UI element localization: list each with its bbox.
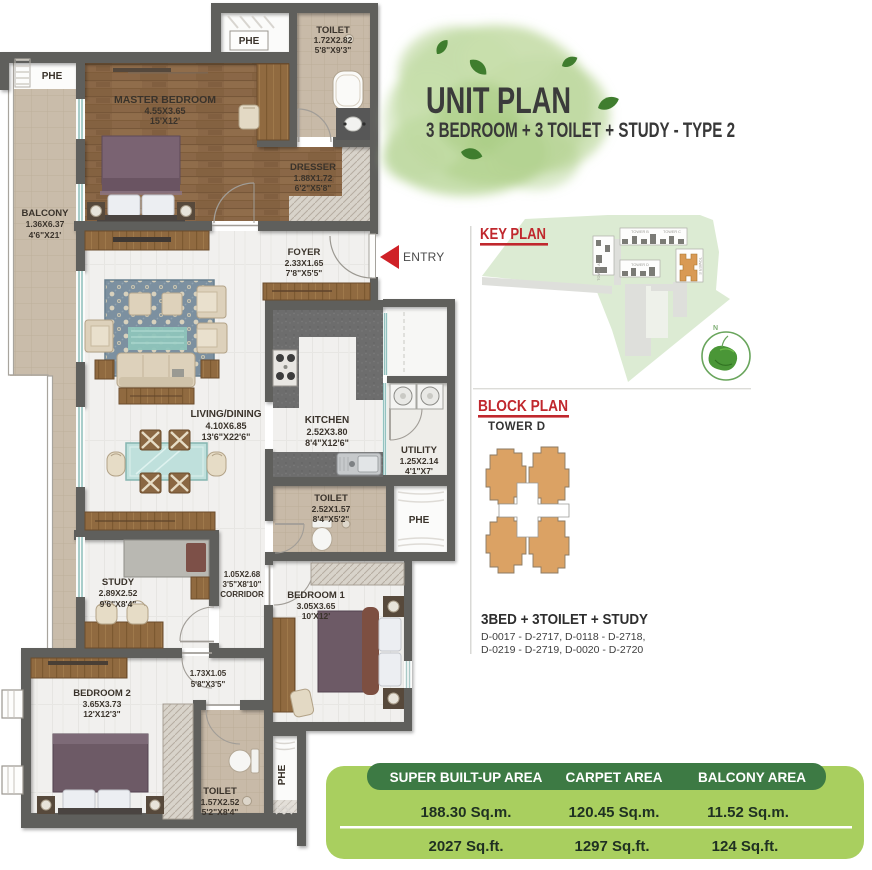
svg-text:124 Sq.ft.: 124 Sq.ft.	[712, 838, 779, 855]
svg-text:DRESSER: DRESSER	[290, 162, 336, 173]
svg-text:D-0017 - D-2717, D-0118 - D-27: D-0017 - D-2717, D-0118 - D-2718,	[481, 631, 645, 643]
svg-text:TOWER C: TOWER C	[663, 230, 681, 234]
svg-text:TOILET: TOILET	[203, 786, 237, 797]
svg-text:3BED + 3TOILET + STUDY: 3BED + 3TOILET + STUDY	[481, 611, 648, 628]
svg-text:2.33X1.65: 2.33X1.65	[285, 258, 324, 268]
svg-text:5'8"X9'3": 5'8"X9'3"	[315, 45, 352, 55]
svg-text:3 BEDROOM + 3 TOILET + STUDY -: 3 BEDROOM + 3 TOILET + STUDY - TYPE 2	[426, 119, 735, 142]
svg-text:ENTRY: ENTRY	[403, 250, 444, 264]
svg-text:1.88X1.72: 1.88X1.72	[294, 173, 333, 183]
svg-text:1.25X2.14: 1.25X2.14	[400, 456, 439, 466]
svg-text:1.73X1.05: 1.73X1.05	[190, 669, 227, 678]
svg-text:BLOCK PLAN: BLOCK PLAN	[478, 398, 568, 415]
svg-text:TOWER D: TOWER D	[631, 263, 649, 267]
svg-text:PHE: PHE	[239, 36, 260, 47]
svg-text:1297 Sq.ft.: 1297 Sq.ft.	[574, 838, 649, 855]
svg-text:FOYER: FOYER	[288, 247, 321, 258]
svg-text:UNIT PLAN: UNIT PLAN	[426, 80, 571, 121]
svg-text:4'1"X7': 4'1"X7'	[405, 466, 433, 476]
svg-text:BALCONY: BALCONY	[22, 208, 70, 219]
svg-text:4.55X3.65: 4.55X3.65	[144, 106, 185, 116]
svg-text:N: N	[713, 325, 718, 332]
svg-text:TOWER D: TOWER D	[488, 421, 546, 433]
svg-text:SUPER BUILT-UP AREA: SUPER BUILT-UP AREA	[390, 770, 543, 785]
svg-text:TOILET: TOILET	[314, 493, 348, 504]
svg-text:TOWER E: TOWER E	[698, 257, 702, 275]
svg-text:1.05X2.68: 1.05X2.68	[224, 570, 261, 579]
svg-text:BEDROOM 2: BEDROOM 2	[73, 688, 131, 699]
svg-text:KEY PLAN: KEY PLAN	[480, 226, 546, 243]
svg-text:PHE: PHE	[409, 515, 430, 526]
svg-text:188.30 Sq.m.: 188.30 Sq.m.	[421, 804, 512, 821]
svg-text:11.52 Sq.m.: 11.52 Sq.m.	[707, 804, 789, 821]
svg-text:1.57X2.52: 1.57X2.52	[201, 797, 240, 807]
svg-text:120.45 Sq.m.: 120.45 Sq.m.	[569, 804, 660, 821]
svg-text:9'6"X8'4": 9'6"X8'4"	[100, 599, 137, 609]
svg-text:BEDROOM 1: BEDROOM 1	[287, 590, 345, 601]
svg-text:CARPET AREA: CARPET AREA	[565, 770, 662, 785]
svg-text:UTILITY: UTILITY	[401, 445, 438, 456]
svg-text:10'X12': 10'X12'	[302, 611, 331, 621]
svg-text:LIVING/DINING: LIVING/DINING	[190, 409, 261, 420]
svg-text:3.05X3.65: 3.05X3.65	[297, 601, 336, 611]
svg-text:2.89X2.52: 2.89X2.52	[99, 588, 138, 598]
svg-text:3'5"X8'10": 3'5"X8'10"	[223, 580, 262, 589]
svg-text:1.36X6.37: 1.36X6.37	[26, 219, 65, 229]
svg-text:13'6"X22'6": 13'6"X22'6"	[202, 432, 251, 442]
svg-text:5'2"X8'4": 5'2"X8'4"	[202, 807, 239, 817]
svg-text:D-0219 - D-2719, D-0020 - D-27: D-0219 - D-2719, D-0020 - D-2720	[481, 644, 643, 656]
svg-text:2027 Sq.ft.: 2027 Sq.ft.	[428, 838, 503, 855]
svg-text:CORRIDOR: CORRIDOR	[220, 590, 264, 599]
svg-text:15'X12': 15'X12'	[150, 116, 180, 126]
svg-text:KITCHEN: KITCHEN	[305, 415, 349, 426]
svg-text:8'4"X12'6": 8'4"X12'6"	[305, 438, 349, 448]
svg-text:7'8"X5'5": 7'8"X5'5"	[286, 268, 323, 278]
svg-text:PHE: PHE	[277, 764, 288, 785]
svg-text:8'4"X5'2": 8'4"X5'2"	[313, 514, 350, 524]
svg-text:4'6"X21': 4'6"X21'	[29, 230, 62, 240]
svg-text:6'2"X5'8": 6'2"X5'8"	[295, 183, 332, 193]
svg-text:TOWER A: TOWER A	[597, 263, 601, 281]
svg-text:12'X12'3": 12'X12'3"	[83, 709, 120, 719]
svg-text:2.52X1.57: 2.52X1.57	[312, 504, 351, 514]
svg-text:5'8"X3'5": 5'8"X3'5"	[191, 680, 226, 689]
svg-text:STUDY: STUDY	[102, 577, 135, 588]
svg-text:1.72X2.82: 1.72X2.82	[314, 35, 353, 45]
svg-text:TOWER B: TOWER B	[631, 230, 649, 234]
svg-text:2.52X3.80: 2.52X3.80	[306, 427, 347, 437]
svg-text:BALCONY AREA: BALCONY AREA	[698, 770, 806, 785]
svg-text:3.65X3.73: 3.65X3.73	[83, 699, 122, 709]
svg-text:4.10X6.85: 4.10X6.85	[205, 421, 246, 431]
svg-text:MASTER BEDROOM: MASTER BEDROOM	[114, 94, 216, 106]
svg-text:PHE: PHE	[42, 71, 63, 82]
